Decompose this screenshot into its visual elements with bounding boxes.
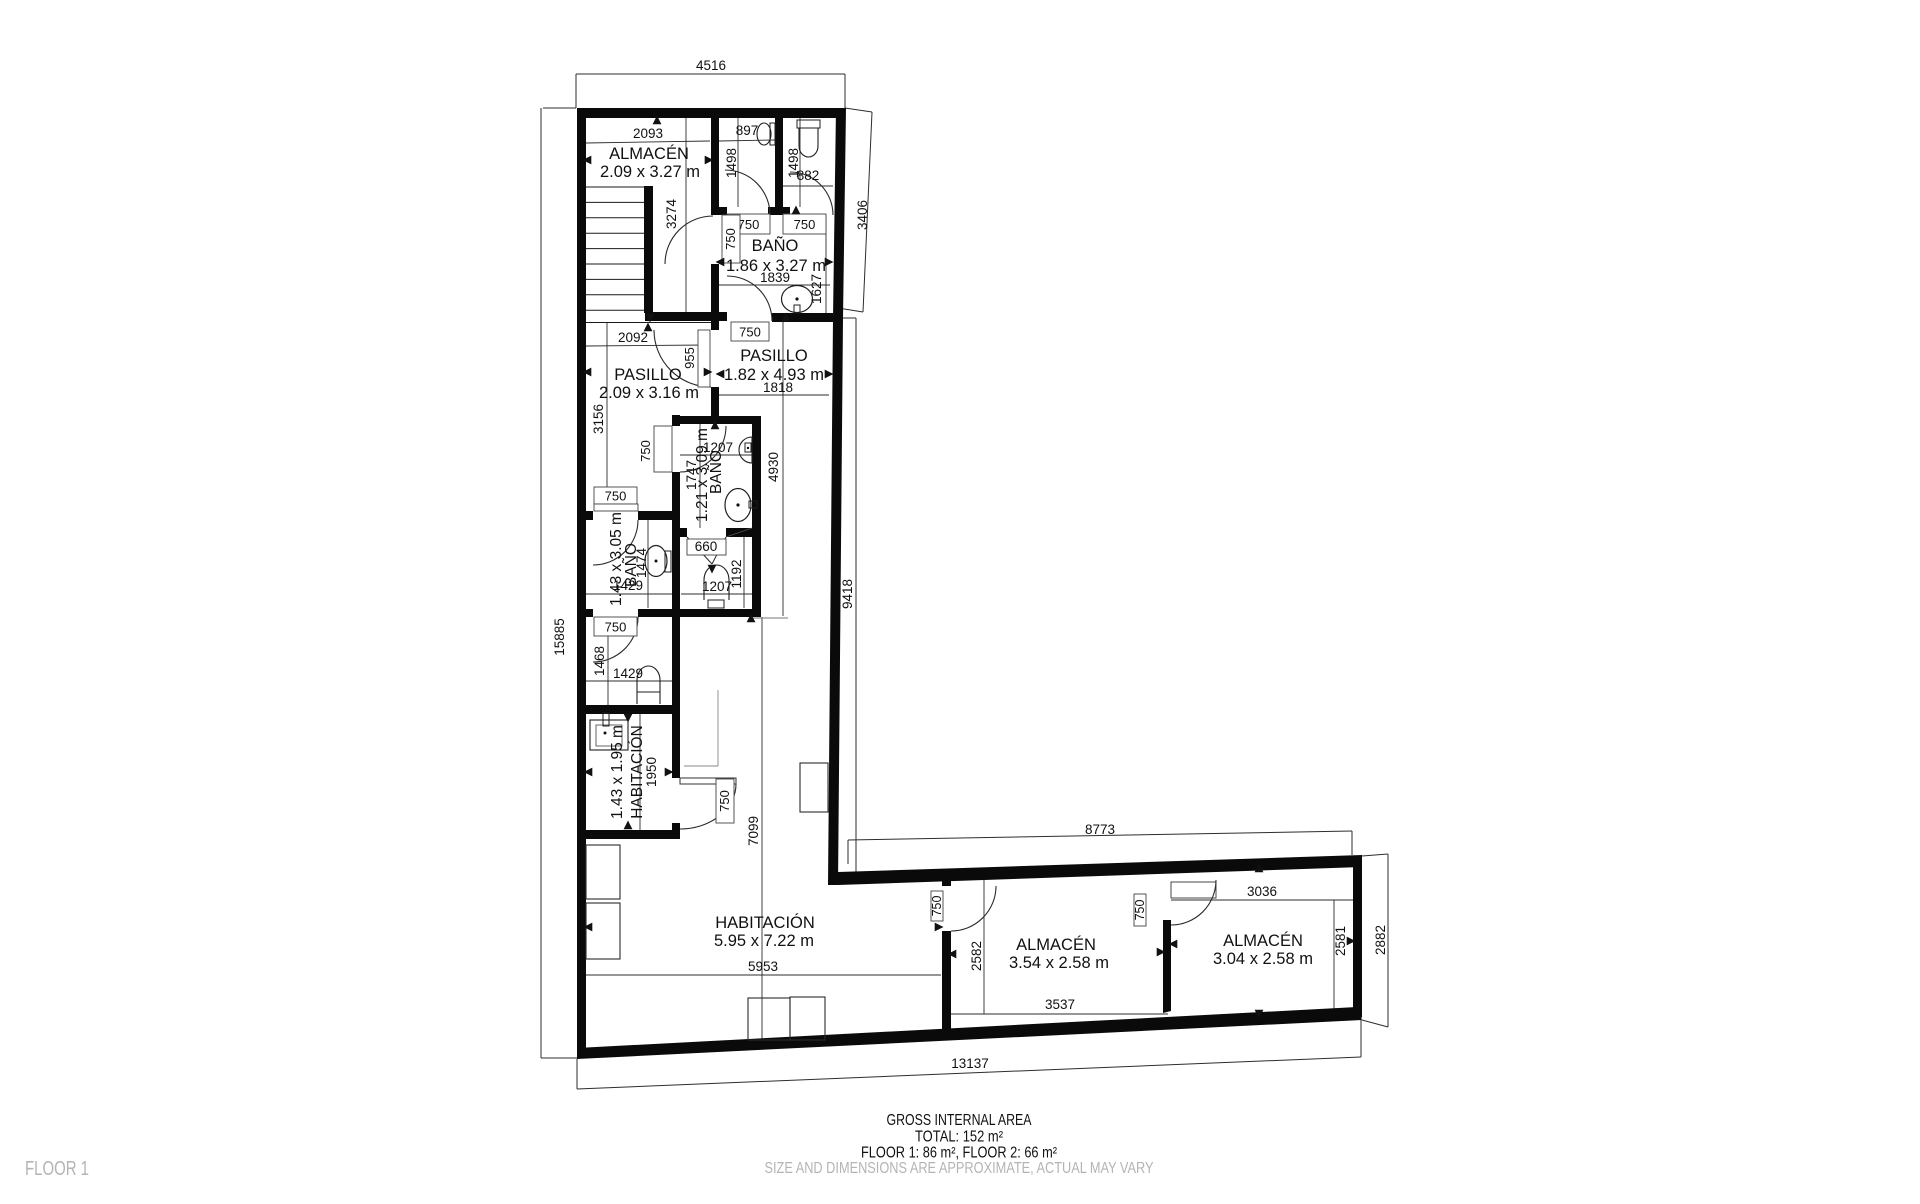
svg-text:5.95 x 7.22 m: 5.95 x 7.22 m — [714, 932, 814, 950]
svg-text:660: 660 — [695, 539, 718, 554]
svg-text:750: 750 — [723, 228, 738, 250]
svg-text:5953: 5953 — [748, 959, 778, 974]
svg-text:1950: 1950 — [644, 757, 659, 787]
svg-text:2.09 x 3.16 m: 2.09 x 3.16 m — [599, 384, 699, 402]
svg-text:750: 750 — [930, 896, 944, 917]
svg-text:3036: 3036 — [1247, 884, 1277, 899]
svg-text:2581: 2581 — [1333, 926, 1348, 956]
svg-text:750: 750 — [738, 217, 760, 232]
svg-text:9418: 9418 — [840, 579, 855, 609]
svg-text:SIZE AND DIMENSIONS ARE APPROX: SIZE AND DIMENSIONS ARE APPROXIMATE, ACT… — [765, 1160, 1154, 1177]
svg-text:2093: 2093 — [633, 126, 663, 141]
svg-text:BAÑO: BAÑO — [752, 235, 799, 255]
svg-text:PASILLO: PASILLO — [740, 347, 808, 365]
svg-text:1.21 x 3.09 m: 1.21 x 3.09 m — [694, 428, 711, 522]
svg-text:3156: 3156 — [591, 404, 606, 434]
svg-text:1.43 x 1.95 m: 1.43 x 1.95 m — [609, 725, 626, 819]
svg-text:750: 750 — [605, 620, 627, 635]
svg-text:ALMACÉN: ALMACÉN — [609, 144, 689, 163]
svg-text:8773: 8773 — [1085, 822, 1115, 837]
svg-text:FLOOR 1: FLOOR 1 — [25, 1158, 89, 1180]
svg-text:1468: 1468 — [592, 646, 607, 676]
svg-text:GROSS INTERNAL AREA: GROSS INTERNAL AREA — [887, 1112, 1033, 1129]
svg-text:FLOOR 1: 86 m², FLOOR 2: 66 m²: FLOOR 1: 86 m², FLOOR 2: 66 m² — [861, 1145, 1057, 1162]
svg-text:897: 897 — [736, 123, 759, 138]
svg-text:750: 750 — [794, 217, 816, 232]
svg-text:882: 882 — [797, 168, 820, 183]
svg-text:3.04 x 2.58 m: 3.04 x 2.58 m — [1213, 950, 1313, 968]
svg-text:1.82 x 4.93 m: 1.82 x 4.93 m — [724, 366, 824, 384]
svg-text:13137: 13137 — [951, 1056, 989, 1071]
svg-text:2582: 2582 — [969, 941, 984, 971]
svg-text:ALMACÉN: ALMACÉN — [1223, 931, 1303, 950]
svg-text:TOTAL: 152 m²: TOTAL: 152 m² — [915, 1129, 1003, 1146]
svg-text:1627: 1627 — [809, 274, 824, 304]
svg-text:3.54 x 2.58 m: 3.54 x 2.58 m — [1009, 954, 1109, 972]
svg-text:BAÑO: BAÑO — [623, 543, 640, 587]
svg-text:2.09 x 3.27 m: 2.09 x 3.27 m — [600, 163, 700, 181]
svg-text:955: 955 — [682, 347, 697, 369]
svg-text:1.43 x 3.05 m: 1.43 x 3.05 m — [608, 512, 625, 606]
svg-text:750: 750 — [717, 790, 732, 812]
svg-text:3406: 3406 — [855, 200, 870, 230]
svg-text:1498: 1498 — [724, 148, 739, 178]
svg-text:750: 750 — [605, 489, 627, 504]
svg-text:1429: 1429 — [613, 666, 643, 681]
svg-text:ALMACÉN: ALMACÉN — [1016, 935, 1096, 954]
svg-text:7099: 7099 — [746, 816, 761, 846]
svg-text:HABITACIÓN: HABITACIÓN — [715, 913, 815, 932]
svg-text:750: 750 — [739, 325, 761, 340]
svg-text:750: 750 — [1133, 900, 1147, 921]
svg-text:1.86 x 3.27 m: 1.86 x 3.27 m — [726, 257, 826, 275]
svg-text:2882: 2882 — [1373, 925, 1388, 955]
svg-text:4930: 4930 — [766, 452, 781, 482]
svg-text:3274: 3274 — [664, 198, 679, 229]
svg-text:1207: 1207 — [702, 579, 732, 594]
svg-text:PASILLO: PASILLO — [614, 366, 682, 384]
svg-text:HABITACIÓN: HABITACIÓN — [629, 725, 646, 819]
svg-text:2092: 2092 — [618, 330, 648, 345]
svg-text:4516: 4516 — [696, 58, 726, 73]
svg-text:15885: 15885 — [552, 618, 567, 656]
svg-text:3537: 3537 — [1045, 997, 1075, 1012]
svg-text:750: 750 — [638, 440, 653, 462]
